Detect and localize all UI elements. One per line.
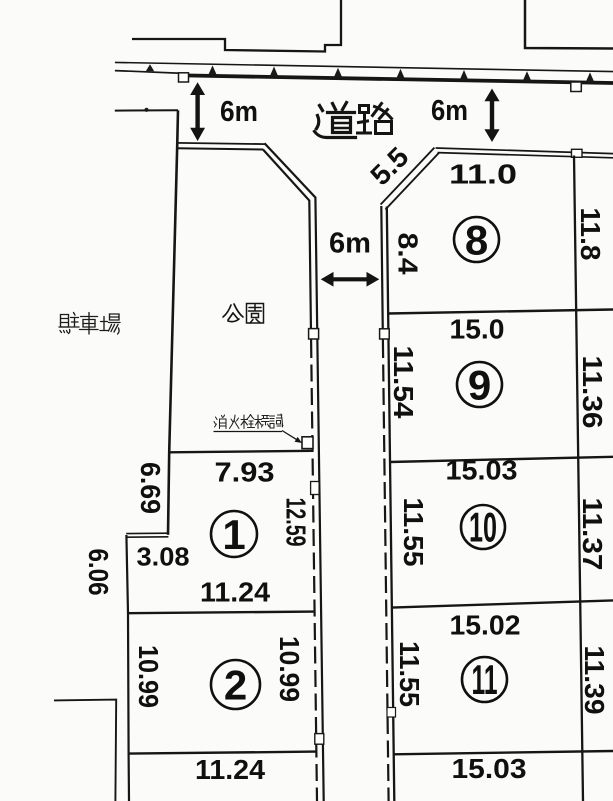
svg-text:11.36: 11.36: [577, 356, 608, 429]
svg-text:11.24: 11.24: [195, 754, 265, 785]
svg-text:11.24: 11.24: [200, 577, 270, 608]
svg-text:11.55: 11.55: [398, 498, 429, 567]
svg-text:6.69: 6.69: [135, 462, 166, 514]
svg-text:2: 2: [224, 662, 247, 709]
svg-text:1: 1: [222, 511, 245, 558]
svg-text:11.55: 11.55: [394, 641, 425, 707]
svg-text:6.06: 6.06: [83, 549, 114, 596]
svg-text:11: 11: [472, 656, 498, 703]
svg-text:8.4: 8.4: [393, 233, 424, 275]
svg-text:11.54: 11.54: [388, 346, 419, 419]
svg-text:15.03: 15.03: [452, 753, 527, 784]
svg-text:9: 9: [468, 362, 491, 409]
svg-text:6m: 6m: [220, 96, 258, 128]
svg-text:6m: 6m: [431, 95, 468, 127]
svg-text:7.93: 7.93: [215, 457, 275, 488]
svg-text:15.0: 15.0: [450, 314, 505, 345]
svg-text:12.59: 12.59: [281, 498, 312, 547]
svg-text:10.99: 10.99: [133, 645, 164, 708]
svg-text:11.0: 11.0: [449, 159, 517, 190]
svg-text:11.8: 11.8: [575, 208, 606, 261]
svg-text:15.03: 15.03: [446, 455, 518, 486]
svg-text:8: 8: [465, 217, 488, 264]
svg-text:11.39: 11.39: [579, 646, 610, 715]
svg-text:6m: 6m: [329, 228, 371, 260]
svg-text:10: 10: [469, 504, 497, 551]
svg-text:3.08: 3.08: [137, 542, 190, 572]
svg-text:10.99: 10.99: [274, 636, 305, 702]
svg-text:15.02: 15.02: [450, 610, 521, 641]
svg-text:11.37: 11.37: [577, 498, 608, 571]
